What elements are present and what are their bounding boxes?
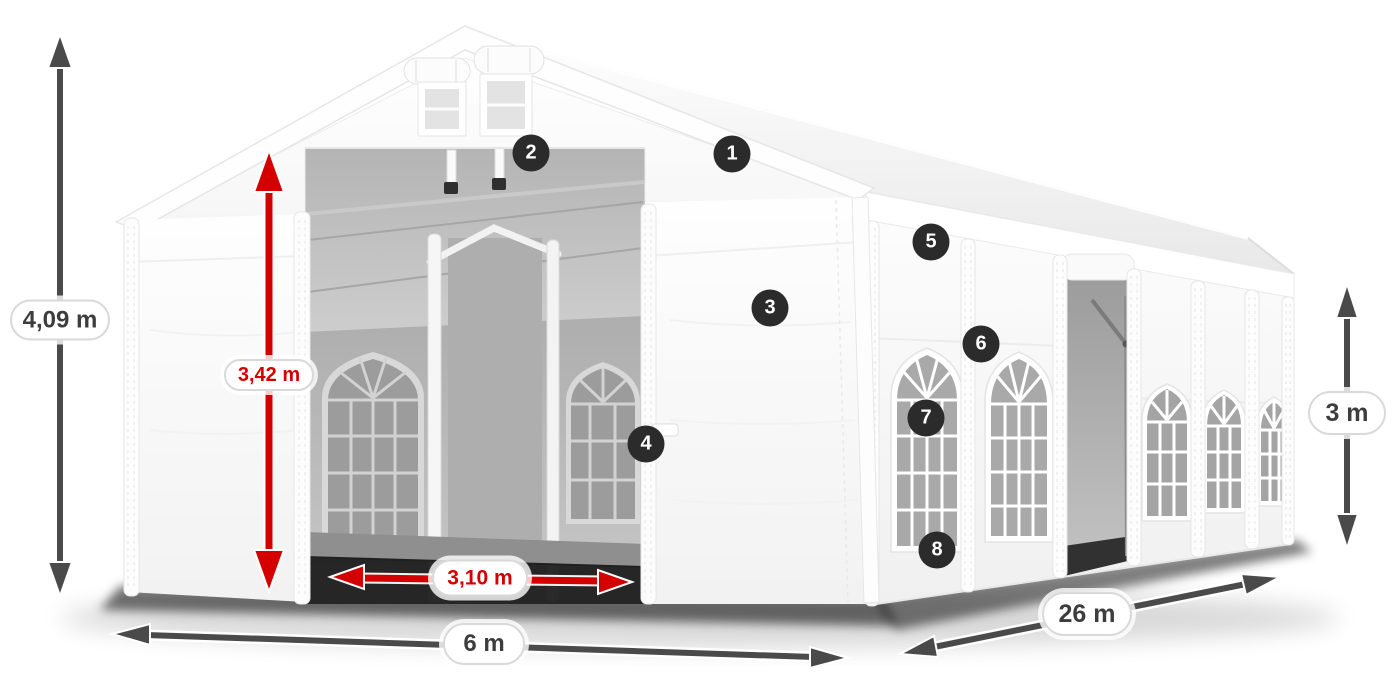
front-wall-left-panel (124, 212, 310, 604)
tent-illustration (0, 0, 1400, 700)
tent-dimension-diagram: 4,09 m 3,42 m 3,10 m 6 m 26 m 3 m 1 2 3 … (0, 0, 1400, 700)
side-doorway-opening (1062, 254, 1134, 576)
dimension-label-wall-height: 3 m (1308, 391, 1386, 435)
side-window-1 (891, 348, 963, 552)
front-wall-right-panel (641, 197, 879, 604)
side-window-2 (985, 352, 1053, 542)
dimension-label-entrance-width: 3,10 m (432, 560, 528, 597)
callout-badge-5: 5 (913, 224, 950, 261)
callout-badge-3: 3 (752, 290, 789, 327)
interior-window-left (322, 352, 424, 548)
callout-badge-4: 4 (628, 426, 665, 463)
callout-badge-8: 8 (919, 532, 956, 569)
dimension-label-front-width: 6 m (443, 623, 525, 665)
callout-badge-6: 6 (963, 326, 1000, 363)
side-window-4 (1202, 390, 1246, 513)
callout-badge-1: 1 (714, 136, 751, 173)
dimension-label-side-length: 26 m (1042, 592, 1132, 636)
tent-interior (305, 146, 645, 604)
side-window-3 (1142, 384, 1192, 521)
callout-badge-7: 7 (908, 400, 945, 437)
dimension-label-ridge-height: 4,09 m (10, 300, 110, 341)
dimension-label-entrance-height: 3,42 m (224, 359, 314, 391)
callout-badge-2: 2 (513, 135, 550, 172)
